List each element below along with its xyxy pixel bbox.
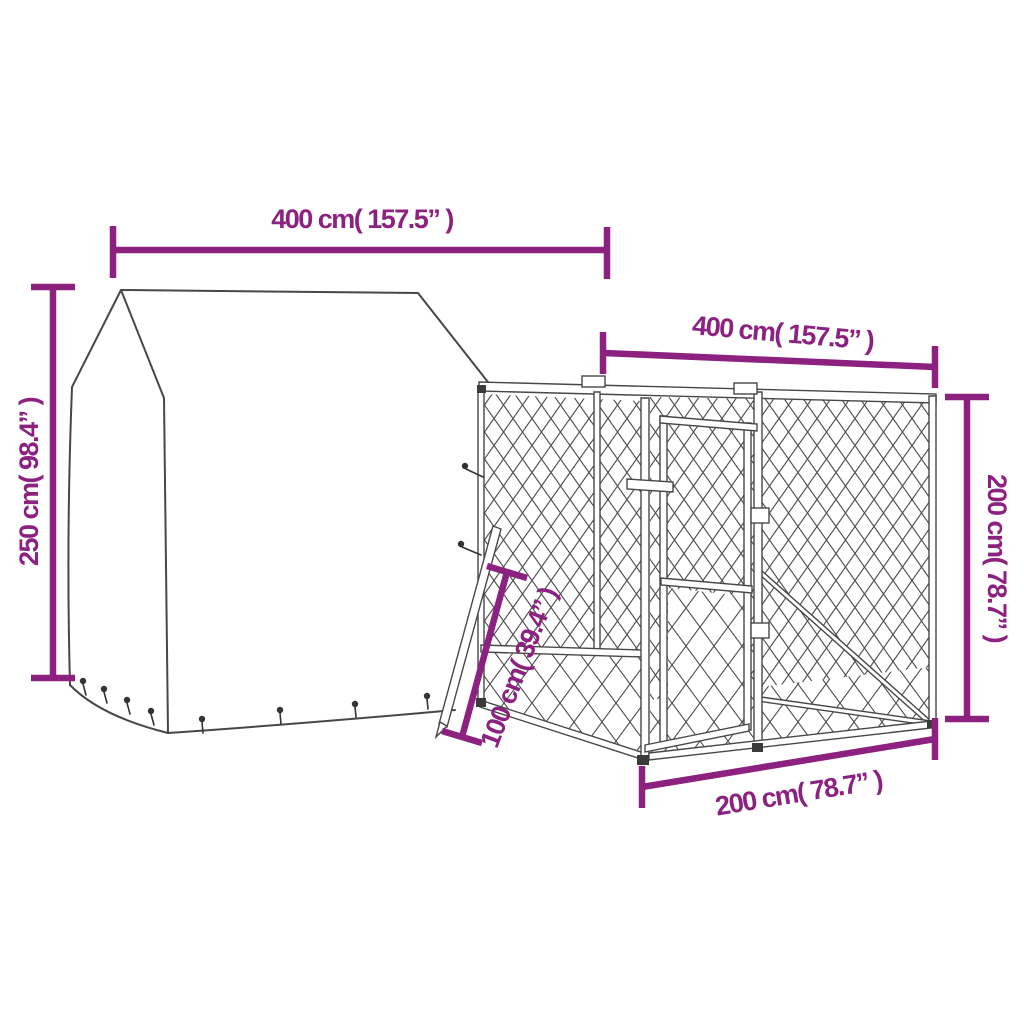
post-foot-door-right (752, 743, 763, 752)
dim-cage-width: 400 cm( 157.5” ) (603, 310, 935, 388)
door-frame-right (744, 423, 751, 730)
door-hinge-lower (751, 623, 769, 638)
kennel-cover (68, 290, 495, 733)
dim-cover-width-label: 400 cm( 157.5” ) (271, 204, 453, 234)
diagram-svg: 400 cm( 157.5” ) 400 cm( 157.5” ) 250 cm… (0, 0, 1024, 1024)
door-right-post (754, 392, 762, 749)
door-hinge-upper (751, 508, 769, 523)
cage-front-right-post (929, 396, 936, 726)
door-left-post (641, 398, 649, 760)
dim-cage-width-label: 400 cm( 157.5” ) (691, 310, 875, 356)
mesh-left-panel-upper (483, 394, 641, 650)
product-dimension-diagram: 400 cm( 157.5” ) 400 cm( 157.5” ) 250 cm… (0, 0, 1024, 1024)
post-foot-door-left (637, 755, 649, 765)
dim-cover-width: 400 cm( 157.5” ) (113, 204, 607, 279)
post-foot-back-left (476, 698, 486, 707)
dim-cover-height-label: 250 cm( 98.4” ) (14, 397, 44, 566)
dim-cage-width-line (604, 353, 935, 367)
rail-connector-right (734, 383, 757, 394)
dim-cage-height-label: 200 cm( 78.7” ) (982, 474, 1012, 643)
rail-connector-left (582, 376, 605, 387)
dim-cage-height: 200 cm( 78.7” ) (945, 397, 1012, 719)
dim-cover-height: 250 cm( 98.4” ) (14, 287, 75, 678)
corner-fitting-top-left (477, 385, 486, 393)
left-panel-seam-post (594, 392, 600, 649)
cover-body (70, 290, 495, 733)
kennel-cage (476, 376, 938, 765)
door-latch (627, 479, 673, 492)
